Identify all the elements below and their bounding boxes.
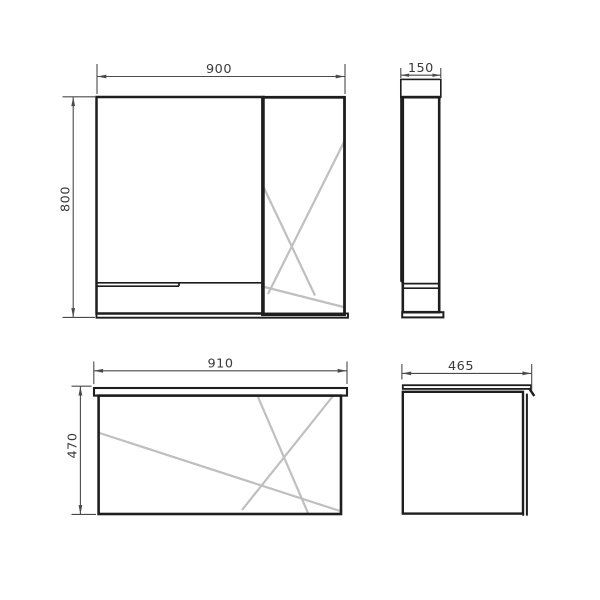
arrowhead xyxy=(338,369,347,373)
arrowhead xyxy=(94,369,103,373)
dimension-mirror-depth: 150 xyxy=(401,61,441,78)
hatch-line xyxy=(263,287,344,308)
dimension-label: 800 xyxy=(59,186,74,212)
open-compartment xyxy=(97,97,264,314)
shelf-profile xyxy=(404,284,438,289)
hatch-line xyxy=(264,188,315,296)
mirror-cabinet-side-view xyxy=(401,79,444,317)
dimension-vanity-height: 470 xyxy=(66,386,97,514)
dimension-label: 150 xyxy=(408,61,434,76)
dimension-label: 900 xyxy=(206,62,232,77)
dimension-label: 470 xyxy=(66,433,81,459)
dimension-mirror-width: 900 xyxy=(97,62,345,94)
arrowhead xyxy=(71,97,75,106)
vanity-front-view xyxy=(94,388,347,514)
vanity-side-view xyxy=(403,385,535,516)
dimension-vanity-width: 910 xyxy=(94,356,347,384)
cabinet-body xyxy=(99,396,341,514)
hatch-line xyxy=(268,140,345,294)
carcass xyxy=(403,97,439,312)
bottom-cap xyxy=(402,312,443,317)
arrowhead xyxy=(402,372,411,376)
mirror-reflection-hatch xyxy=(263,140,346,307)
dimension-label: 910 xyxy=(208,356,234,371)
mirror-reflection-hatch xyxy=(100,396,341,513)
carcass xyxy=(403,392,523,514)
mirror-cabinet-front-view xyxy=(97,97,349,318)
dimension-label: 465 xyxy=(448,359,474,374)
dimension-mirror-height: 800 xyxy=(59,97,96,318)
arrowhead xyxy=(79,387,83,396)
arrowhead xyxy=(97,75,106,79)
glass-shelf xyxy=(97,283,263,286)
top-cap xyxy=(401,79,441,97)
arrowhead xyxy=(79,505,83,514)
arrowhead xyxy=(522,372,531,376)
hatch-line xyxy=(100,433,341,511)
arrowhead xyxy=(336,75,345,79)
hatch-line xyxy=(258,397,308,513)
countertop-profile xyxy=(403,385,531,389)
technical-drawing: 900 150 800 910 470 xyxy=(0,0,600,600)
arrowhead xyxy=(71,308,75,317)
blueprint-page: 900 150 800 910 470 xyxy=(0,0,600,600)
